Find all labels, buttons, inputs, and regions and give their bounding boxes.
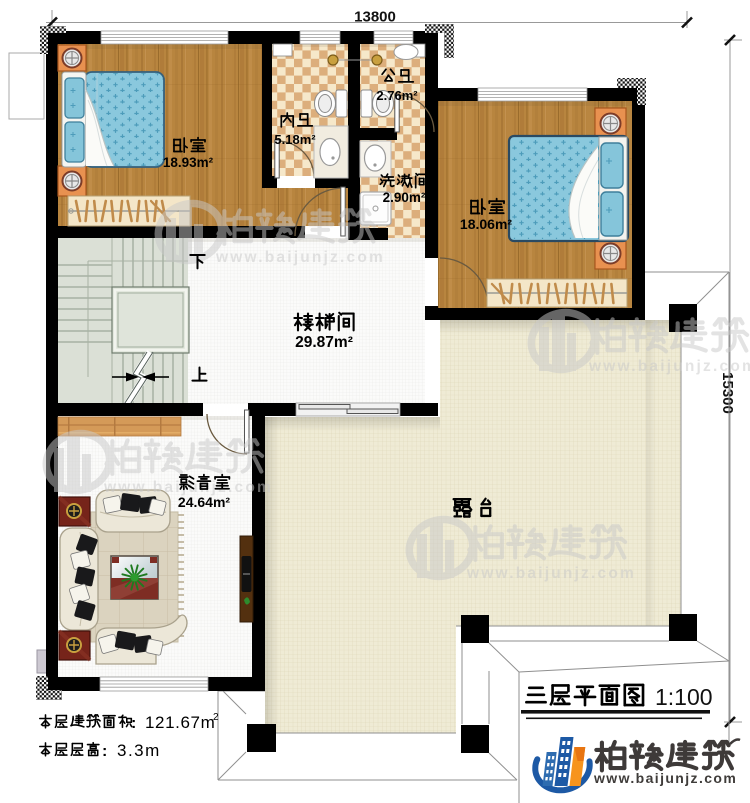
svg-text:18.06m²: 18.06m² <box>460 216 512 232</box>
svg-text:29.87m²: 29.87m² <box>295 334 353 351</box>
svg-text:24.64m²: 24.64m² <box>178 494 230 510</box>
svg-text:13800: 13800 <box>354 9 396 26</box>
svg-text:www.baijunjz.com: www.baijunjz.com <box>215 249 385 266</box>
svg-text:3.3m: 3.3m <box>117 741 161 760</box>
svg-text::: : <box>131 715 136 732</box>
svg-text:121.67m: 121.67m <box>145 713 215 732</box>
svg-text:18.93m²: 18.93m² <box>163 155 214 170</box>
svg-text::: : <box>102 743 107 760</box>
svg-text:2.90m²: 2.90m² <box>383 190 426 205</box>
svg-text:www.baijunjz.com: www.baijunjz.com <box>466 565 636 582</box>
svg-text:1:100: 1:100 <box>655 684 713 710</box>
svg-text:15300: 15300 <box>719 372 736 414</box>
svg-text:2: 2 <box>213 712 219 723</box>
svg-text:www.baijunjz.com: www.baijunjz.com <box>593 770 737 786</box>
svg-text:5.18m²: 5.18m² <box>274 132 316 147</box>
svg-text:2.76m²: 2.76m² <box>376 88 418 103</box>
svg-text:www.baijunjz.com: www.baijunjz.com <box>588 358 750 375</box>
